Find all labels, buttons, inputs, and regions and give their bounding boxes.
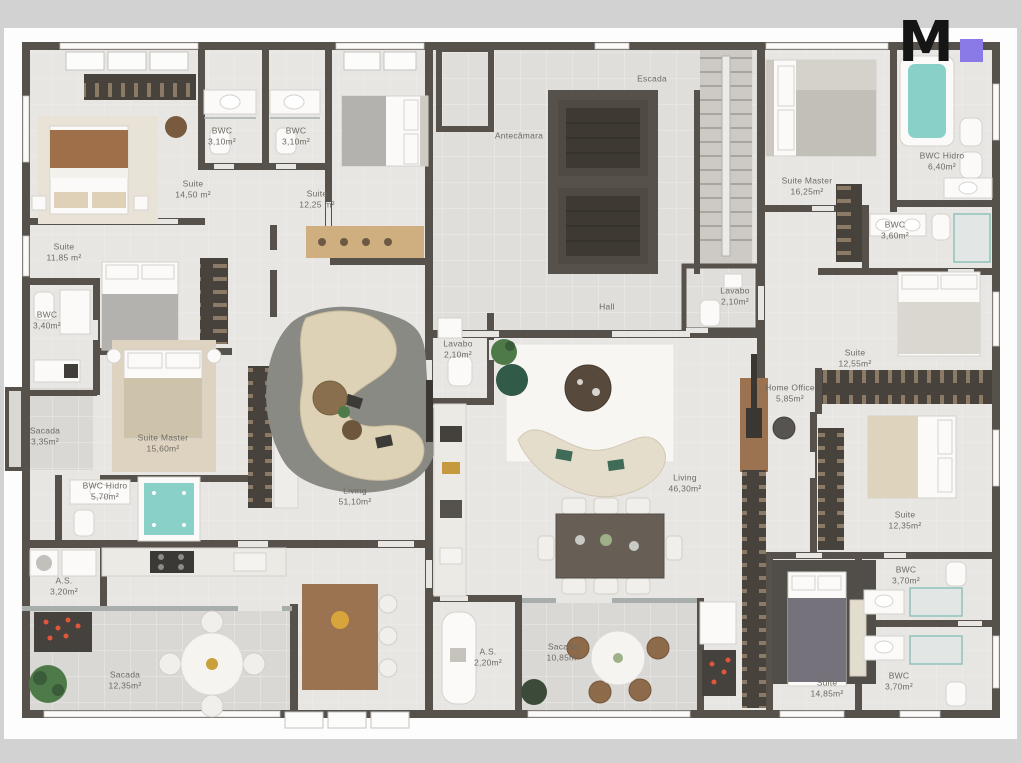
- tv-icon: [426, 380, 433, 442]
- elevator-shafts: [548, 90, 658, 274]
- brand-square-icon: [960, 39, 983, 62]
- bed-icon: [772, 560, 876, 686]
- wardrobe-icon: [822, 370, 992, 404]
- tv-icon: [751, 354, 757, 412]
- laundry-fixtures: [442, 612, 476, 704]
- floor-plan: [0, 0, 1021, 763]
- wardrobe-icon: [84, 74, 196, 100]
- wardrobe-icon: [818, 428, 844, 550]
- bed-icon: [766, 60, 876, 156]
- sofa-icon: [266, 307, 437, 493]
- bed-icon: [868, 416, 956, 498]
- bed-icon: [102, 262, 178, 350]
- bed-icon: [898, 272, 980, 356]
- brand-letter: M: [898, 18, 951, 68]
- brand-logo: M: [898, 18, 983, 68]
- kitchen-counter: [434, 404, 466, 596]
- wardrobe-icon: [200, 258, 228, 344]
- bed-icon: [342, 96, 428, 166]
- desk-icon: [306, 226, 424, 258]
- wardrobe-icon: [836, 184, 862, 262]
- laundry-fixtures: [30, 550, 96, 576]
- balcony-grill: [34, 612, 92, 652]
- kitchen-island: [302, 584, 397, 690]
- plant-icon: [29, 665, 67, 703]
- kitchen-counter: [102, 548, 286, 576]
- bed-icon: [107, 340, 221, 472]
- staircase: [700, 50, 752, 266]
